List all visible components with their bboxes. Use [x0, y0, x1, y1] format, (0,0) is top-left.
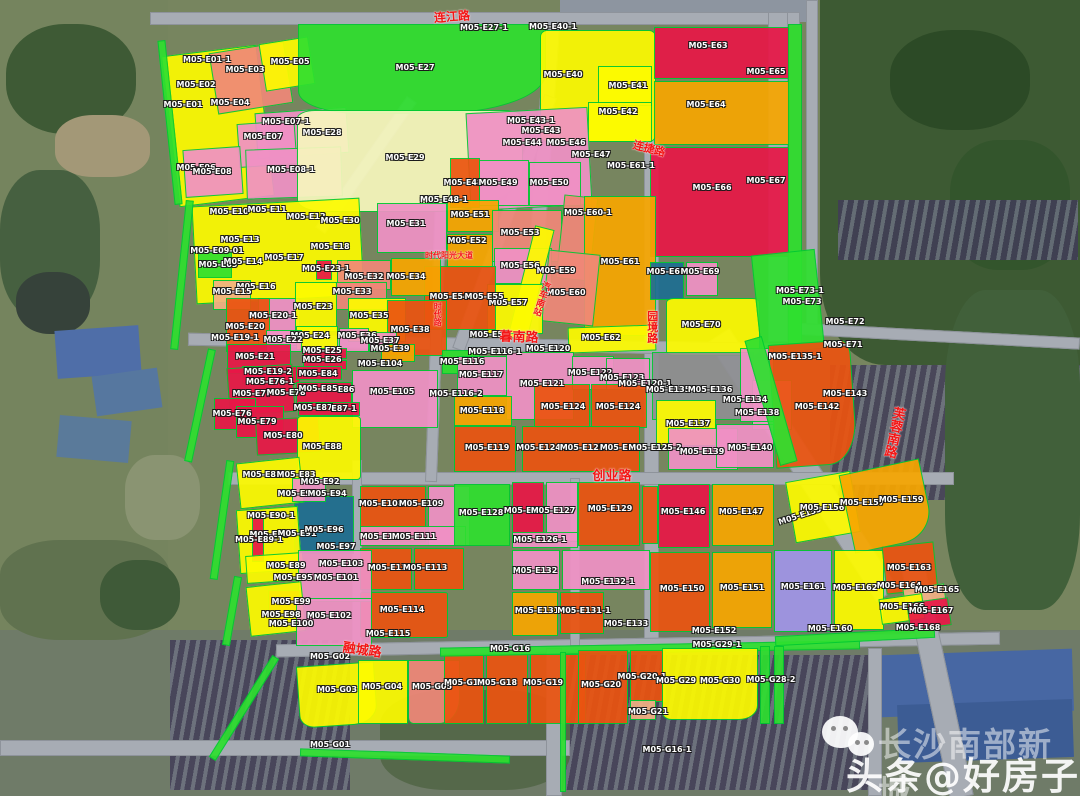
parcel-label: M05-E33 — [332, 288, 371, 296]
parcel-label: M05-E104 — [358, 360, 403, 368]
parcel-label: M05-E139 — [680, 448, 725, 456]
road-label: 时代路 — [433, 302, 441, 326]
parcel-label: M05-E39 — [370, 345, 409, 353]
parcel-label: M05-E04 — [210, 99, 249, 107]
parcel-label: M05-G29-1 — [693, 641, 742, 649]
parcel-label: M05-E29 — [385, 154, 424, 162]
parcel-label: M05-E125-2 — [628, 444, 681, 452]
parcel-label: M05-E140 — [728, 444, 773, 452]
parcel-label: M05-E89 — [266, 562, 305, 570]
parcel-label: M05-G01 — [310, 741, 350, 749]
parcel-label: M05-E105 — [370, 388, 415, 396]
parcel-label: M05-E118 — [460, 407, 505, 415]
parcel-label: M05-E117 — [459, 371, 504, 379]
road-label: 时代阳光大道 — [425, 252, 473, 260]
parcel-label: M05-E102 — [307, 612, 352, 620]
parcel-label: M05-E96 — [304, 526, 343, 534]
land-parcel[interactable] — [377, 203, 447, 253]
parcel-label: M05-E22 — [263, 336, 302, 344]
parcel-label: M05-E44 — [502, 139, 541, 147]
parcel-label: M05-E18 — [310, 243, 349, 251]
parcel-label: M05-E119 — [465, 444, 510, 452]
parcel-label: M05-E165 — [915, 586, 960, 594]
parcel-label: M05-E30 — [320, 217, 359, 225]
parcel-label: M05-E115 — [366, 630, 411, 638]
parcel-label: M05-E65 — [746, 68, 785, 76]
parcel-label: M05-E134 — [723, 396, 768, 404]
land-parcel[interactable] — [650, 147, 790, 257]
parcel-label: M05-E03 — [225, 66, 264, 74]
parcel-label: M05-E103 — [319, 560, 364, 568]
parcel-label: M05-E125 — [560, 444, 605, 452]
satellite-patch — [16, 272, 90, 334]
parcel-label: M05-E43-1 — [507, 117, 555, 125]
parcel-label: M05-E32 — [344, 273, 383, 281]
parcel-label: M05-G18 — [477, 679, 517, 687]
parcel-label: M05-E11 — [247, 206, 286, 214]
parcel-label: M05-E150 — [660, 585, 705, 593]
parcel-label: M05-E49 — [478, 179, 517, 187]
land-parcel[interactable] — [210, 460, 235, 580]
parcel-label: M05-E08-1 — [267, 166, 315, 174]
parcel-label: M05-E53 — [500, 229, 539, 237]
land-parcel[interactable] — [654, 81, 790, 145]
parcel-label: M05-E72 — [825, 318, 864, 326]
road-label: 连江路 — [434, 9, 471, 24]
parcel-label: M05-E88 — [302, 443, 341, 451]
parcel-label: M05-E21 — [235, 353, 274, 361]
parcel-label: M05-E28 — [302, 129, 341, 137]
parcel-label: M05-E51 — [450, 211, 489, 219]
parcel-label: M05-E98 — [261, 611, 300, 619]
parcel-label: M05-E152 — [692, 627, 737, 635]
parcel-label: M05-E20 — [225, 323, 264, 331]
parcel-label: M05-E59 — [536, 267, 575, 275]
parcel-label: M05-E15 — [212, 288, 251, 296]
parcel-label: E86 — [338, 386, 355, 394]
land-parcel[interactable] — [358, 660, 408, 724]
parcel-label: M05-G03 — [317, 686, 357, 694]
parcel-label: M05-E52 — [447, 237, 486, 245]
parcel-label: M05-E116-1 — [468, 348, 521, 356]
parcel-label: M05-E08 — [192, 168, 231, 176]
land-parcel[interactable] — [760, 646, 770, 724]
parcel-label: M05-E61-1 — [607, 162, 655, 170]
parcel-label: M05-E02 — [176, 81, 215, 89]
satellite-patch — [100, 560, 180, 630]
parcel-label: M05-E48 — [443, 179, 482, 187]
parcel-label: M05-E90-1 — [247, 512, 295, 520]
parcel-label: M05-E79 — [237, 418, 276, 426]
land-parcel[interactable] — [170, 200, 194, 350]
parcel-label: M05-E07 — [243, 133, 282, 141]
parcel-label: M05-E09-01 — [190, 247, 243, 255]
road-segment — [0, 740, 570, 756]
parcel-label: M05-E25 — [302, 347, 341, 355]
parcel-label: M05-E40-1 — [529, 23, 577, 31]
parcel-label: M05-E47 — [571, 151, 610, 159]
parcel-label: M05-E19-1 — [211, 334, 259, 342]
watermark-handle: 头条@好房子网 — [846, 746, 1080, 796]
parcel-label: M05-E135-1 — [768, 353, 821, 361]
parcel-label: M05-E109 — [399, 500, 444, 508]
parcel-label: M05-E66 — [692, 184, 731, 192]
land-parcel[interactable] — [486, 654, 528, 724]
parcel-label: M05-E129 — [588, 505, 633, 513]
parcel-label: M05-G20 — [581, 681, 621, 689]
parcel-label: M05-E60 — [546, 289, 585, 297]
parcel-label: M05-E142 — [795, 403, 840, 411]
parcel-label: M05-E55 — [464, 293, 503, 301]
parcel-label: M05-E26 — [302, 356, 341, 364]
parcel-label: M05-E07-1 — [262, 118, 310, 126]
parcel-label: M05-E167 — [909, 607, 954, 615]
land-parcel[interactable] — [352, 370, 438, 428]
parcel-label: M05-E23 — [293, 303, 332, 311]
parcel-label: M05-E131-1 — [557, 607, 610, 615]
parcel-label: M05-G30 — [700, 677, 740, 685]
parcel-label: M05-E127 — [531, 507, 576, 515]
parcel-label: M05-E146 — [661, 508, 706, 516]
parcel-label: M05-E162 — [833, 584, 878, 592]
parcel-label: M05-E143 — [823, 390, 868, 398]
satellite-patch — [890, 30, 1030, 130]
parcel-label: M05-E160 — [808, 625, 853, 633]
parcel-label: M05-E85 — [298, 385, 337, 393]
parcel-label: M05-E136 — [688, 386, 733, 394]
parcel-label: M05-E17 — [264, 254, 303, 262]
parcel-label: M05-G21 — [628, 708, 668, 716]
parcel-label: M05-E94 — [307, 490, 346, 498]
parcel-label: M05-E27 — [395, 64, 434, 72]
parcel-label: M05-E71 — [823, 341, 862, 349]
parcel-label: M05-E147 — [719, 508, 764, 516]
road-label: 暮南路 — [499, 331, 538, 346]
parcel-label: M05-E159 — [879, 496, 924, 504]
parcel-label: M05-E128 — [459, 509, 504, 517]
parcel-label: M05-E20-1 — [249, 312, 297, 320]
parcel-label: M05-E163 — [887, 564, 932, 572]
parcel-label: M05-E19-2 — [244, 368, 292, 376]
satellite-patch — [838, 200, 1078, 260]
parcel-label: M05-E132 — [513, 567, 558, 575]
parcel-label: M05-E120 — [526, 345, 571, 353]
parcel-label: M05-E99 — [271, 598, 310, 606]
parcel-label: M05-E156 — [800, 504, 845, 512]
land-parcel[interactable] — [774, 550, 832, 632]
planning-map-canvas[interactable]: M05-E01-1M05-E03M05-E05M05-E02M05-E01M05… — [0, 0, 1080, 796]
parcel-label: M05-G28-2 — [747, 676, 796, 684]
parcel-label: M05-E23-1 — [302, 265, 350, 273]
parcel-label: M05-E42 — [598, 108, 637, 116]
road-label: 园境路 — [646, 311, 658, 344]
parcel-label: M05-E46 — [546, 139, 585, 147]
parcel-label: E87-1 — [331, 405, 356, 413]
parcel-label: M05-E69 — [680, 268, 719, 276]
parcel-label: M05-E111 — [392, 533, 437, 541]
parcel-label: M05-E13 — [220, 236, 259, 244]
parcel-label: M05-E31 — [386, 220, 425, 228]
parcel-label: M05-G04 — [362, 683, 402, 691]
parcel-label: M05-E124 — [541, 403, 586, 411]
parcel-label: M05-E95 — [273, 574, 312, 582]
parcel-label: M05-E126-1 — [513, 536, 566, 544]
parcel-label: M05-E35 — [349, 312, 388, 320]
satellite-patch — [56, 415, 131, 463]
parcel-label: M05-E157 — [840, 499, 885, 507]
parcel-label: M05-E50 — [529, 179, 568, 187]
parcel-label: M05-E89-1 — [235, 536, 283, 544]
land-parcel[interactable] — [774, 646, 784, 724]
parcel-label: M05-E121 — [520, 380, 565, 388]
parcel-label: M05-E60-1 — [564, 209, 612, 217]
land-parcel[interactable] — [184, 348, 216, 462]
parcel-label: M05-G19 — [523, 679, 563, 687]
watermark-brand: 头条 — [846, 755, 924, 796]
parcel-label: M05-E34 — [386, 273, 425, 281]
parcel-label: M05-E101 — [314, 574, 359, 582]
parcel-label: M05-E97 — [316, 543, 355, 551]
parcel-label: M05-E80 — [263, 432, 302, 440]
parcel-label: M05-E70 — [681, 321, 720, 329]
parcel-label: M05-E64 — [686, 101, 725, 109]
parcel-label: M05-E48-1 — [420, 196, 468, 204]
road-label: 创业路 — [592, 470, 631, 484]
parcel-label: M05-E54 — [429, 293, 468, 301]
parcel-label: M05-E135 — [646, 386, 691, 394]
parcel-label: M05-E84 — [298, 370, 337, 378]
parcel-label: M05-E73 — [782, 298, 821, 306]
parcel-label: M05-E41 — [608, 82, 647, 90]
land-parcel[interactable] — [658, 484, 710, 548]
satellite-patch — [55, 115, 150, 177]
land-parcel[interactable] — [642, 486, 658, 544]
parcel-label: M05-E56 — [500, 262, 539, 270]
parcel-label: M05-E100 — [269, 620, 314, 628]
parcel-label: M05-E133 — [604, 620, 649, 628]
parcel-label: M05-E63 — [688, 42, 727, 50]
parcel-label: M05-E161 — [781, 583, 826, 591]
satellite-patch — [125, 455, 200, 540]
land-parcel[interactable] — [578, 482, 640, 546]
land-parcel[interactable] — [560, 652, 566, 792]
parcel-label: M05-E67 — [746, 177, 785, 185]
parcel-label: M05-E108 — [359, 500, 404, 508]
parcel-label: M05-E73-1 — [776, 287, 824, 295]
parcel-label: M05-E132-1 — [581, 578, 634, 586]
parcel-label: M05-G16-1 — [643, 746, 692, 754]
parcel-label: M05-E43 — [521, 127, 560, 135]
parcel-label: M05-E92 — [300, 478, 339, 486]
parcel-label: M05-E114 — [380, 606, 425, 614]
parcel-label: M05-E87 — [293, 404, 332, 412]
parcel-label: M05-E27-1 — [460, 24, 508, 32]
parcel-label: M05-E38 — [390, 326, 429, 334]
parcel-label: M05-E01 — [163, 101, 202, 109]
parcel-label: M05-E14 — [223, 258, 262, 266]
parcel-label: M05-E05 — [270, 58, 309, 66]
parcel-label: M05-E76-1 — [246, 378, 294, 386]
parcel-label: M05-E137 — [666, 420, 711, 428]
parcel-label: M05-E124 — [596, 403, 641, 411]
parcel-label: M05-E131 — [515, 607, 560, 615]
parcel-label: M05-E138 — [735, 409, 780, 417]
parcel-label: M05-E62 — [581, 334, 620, 342]
parcel-label: M05-E61 — [600, 258, 639, 266]
parcel-label: M05-E151 — [720, 584, 765, 592]
parcel-label: M05-E168 — [896, 624, 941, 632]
parcel-label: M05-E113 — [403, 564, 448, 572]
parcel-label: M05-E01-1 — [183, 56, 231, 64]
parcel-label: M05-E116 — [440, 358, 485, 366]
parcel-label: M05-E10 — [209, 208, 248, 216]
parcel-label: M05-G29 — [656, 677, 696, 685]
parcel-label: M05-E116-2 — [429, 390, 482, 398]
parcel-label: M05-G16 — [490, 645, 530, 653]
parcel-label: M05-E40 — [543, 71, 582, 79]
